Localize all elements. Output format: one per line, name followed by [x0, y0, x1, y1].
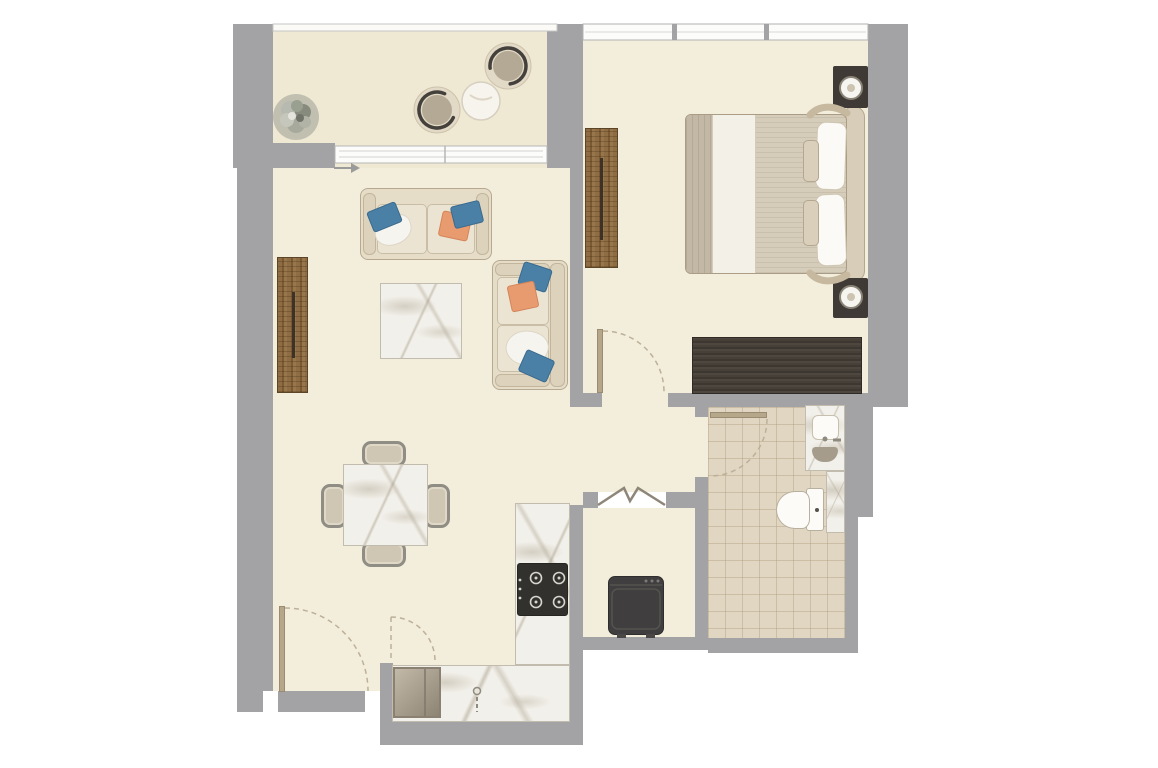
balcony-side-table	[462, 82, 500, 120]
bedroom-window	[583, 24, 868, 40]
vanity-faucet	[823, 437, 842, 442]
bathroom-door-arc	[710, 419, 767, 476]
entry-door-arc	[285, 608, 368, 691]
balcony-sliding-door	[335, 146, 547, 163]
headboard-curl-bottom	[810, 273, 847, 281]
toilet-flush-button	[815, 508, 819, 512]
balcony-lounge-chair	[485, 43, 531, 89]
floor-plan	[0, 0, 1158, 768]
balcony-lounge-chair	[414, 87, 460, 133]
detail-overlay	[0, 0, 1158, 768]
entry-direction-arrow	[334, 163, 360, 173]
washing-machine-details	[610, 580, 662, 639]
utility-bifold-door	[598, 488, 665, 505]
potted-plant	[273, 94, 319, 140]
balcony-railing	[273, 24, 557, 31]
nightstand-lamp	[840, 77, 862, 99]
headboard-curl-top	[810, 107, 847, 115]
nightstand-lamp	[840, 286, 862, 308]
inner-entry-door-arc	[391, 617, 435, 661]
kitchen-faucet	[441, 688, 481, 713]
bedroom-door-arc	[603, 331, 664, 392]
